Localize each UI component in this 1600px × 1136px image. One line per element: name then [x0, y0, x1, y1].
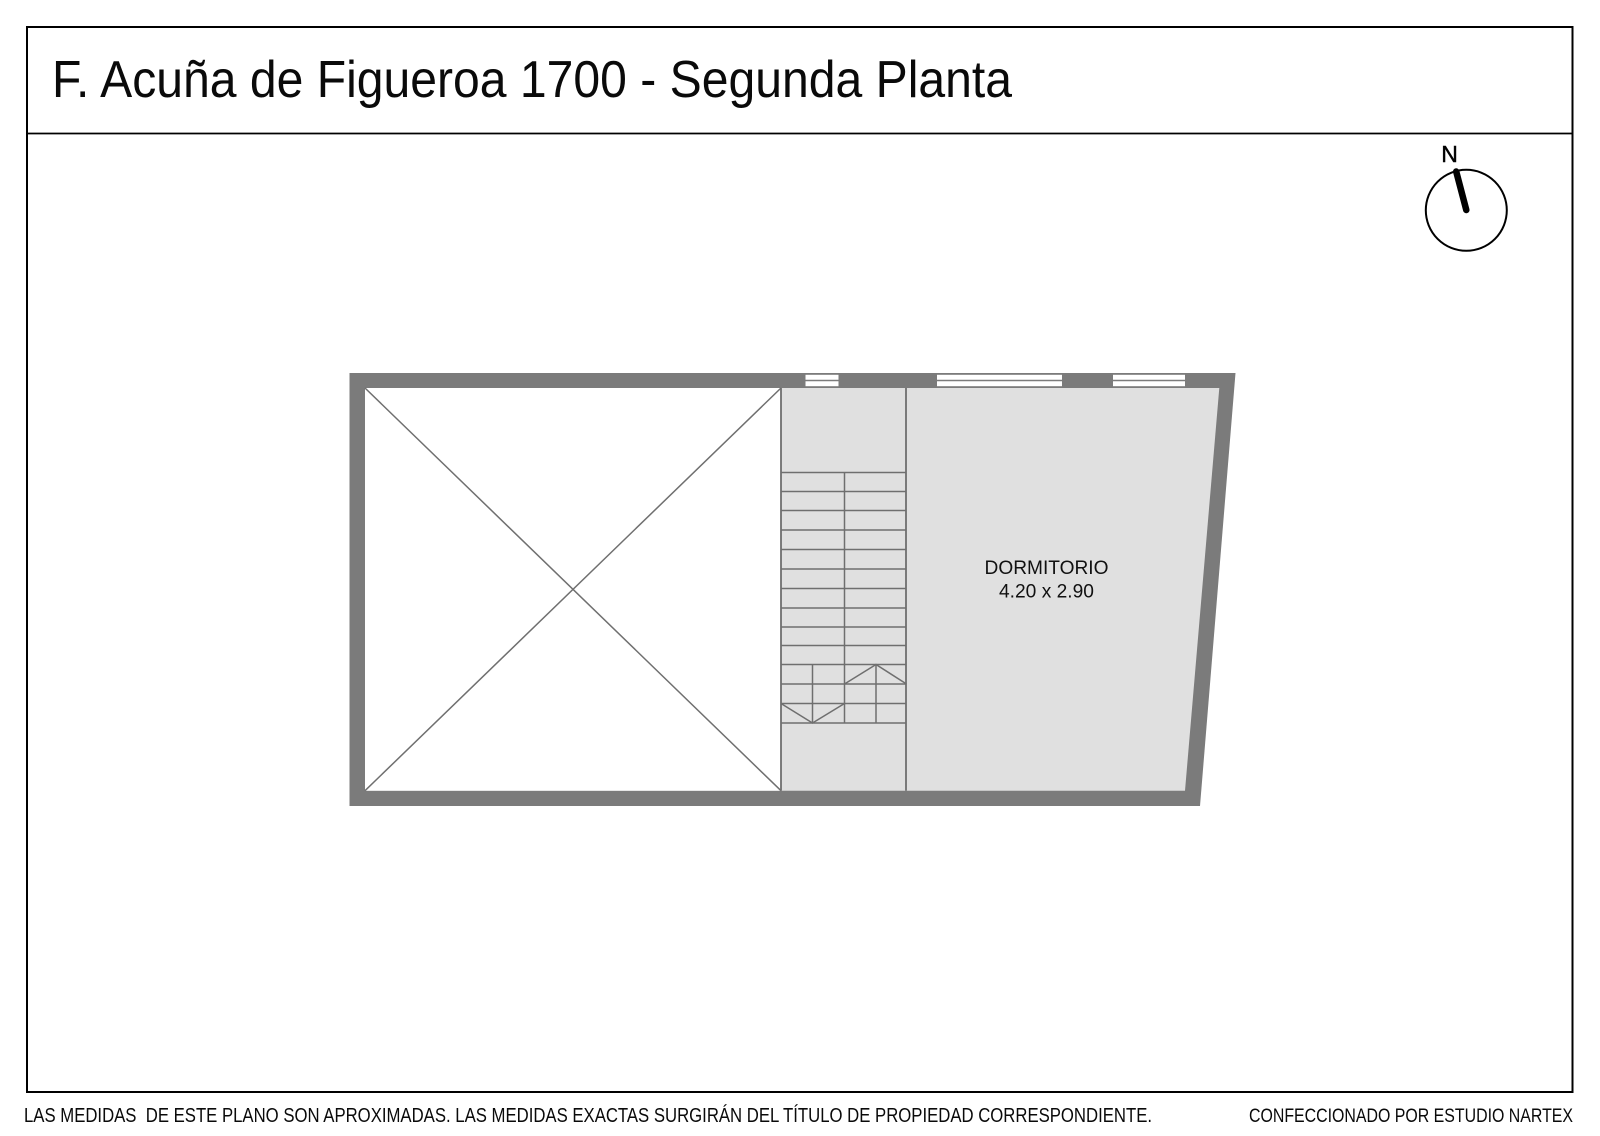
svg-text:N: N: [1441, 141, 1458, 167]
svg-text:CONFECCIONADO POR ESTUDIO NART: CONFECCIONADO POR ESTUDIO NARTEX: [1249, 1105, 1573, 1127]
svg-text:DORMITORIO: DORMITORIO: [985, 558, 1109, 579]
svg-text:4.20 x 2.90: 4.20 x 2.90: [999, 582, 1094, 603]
svg-text:LAS MEDIDAS DE ESTE PLANO SON: LAS MEDIDAS DE ESTE PLANO SON APROXIMADA…: [24, 1104, 1152, 1127]
svg-text:F. Acuña de Figueroa 1700 - Se: F. Acuña de Figueroa 1700 - Segunda Plan…: [52, 51, 1012, 109]
